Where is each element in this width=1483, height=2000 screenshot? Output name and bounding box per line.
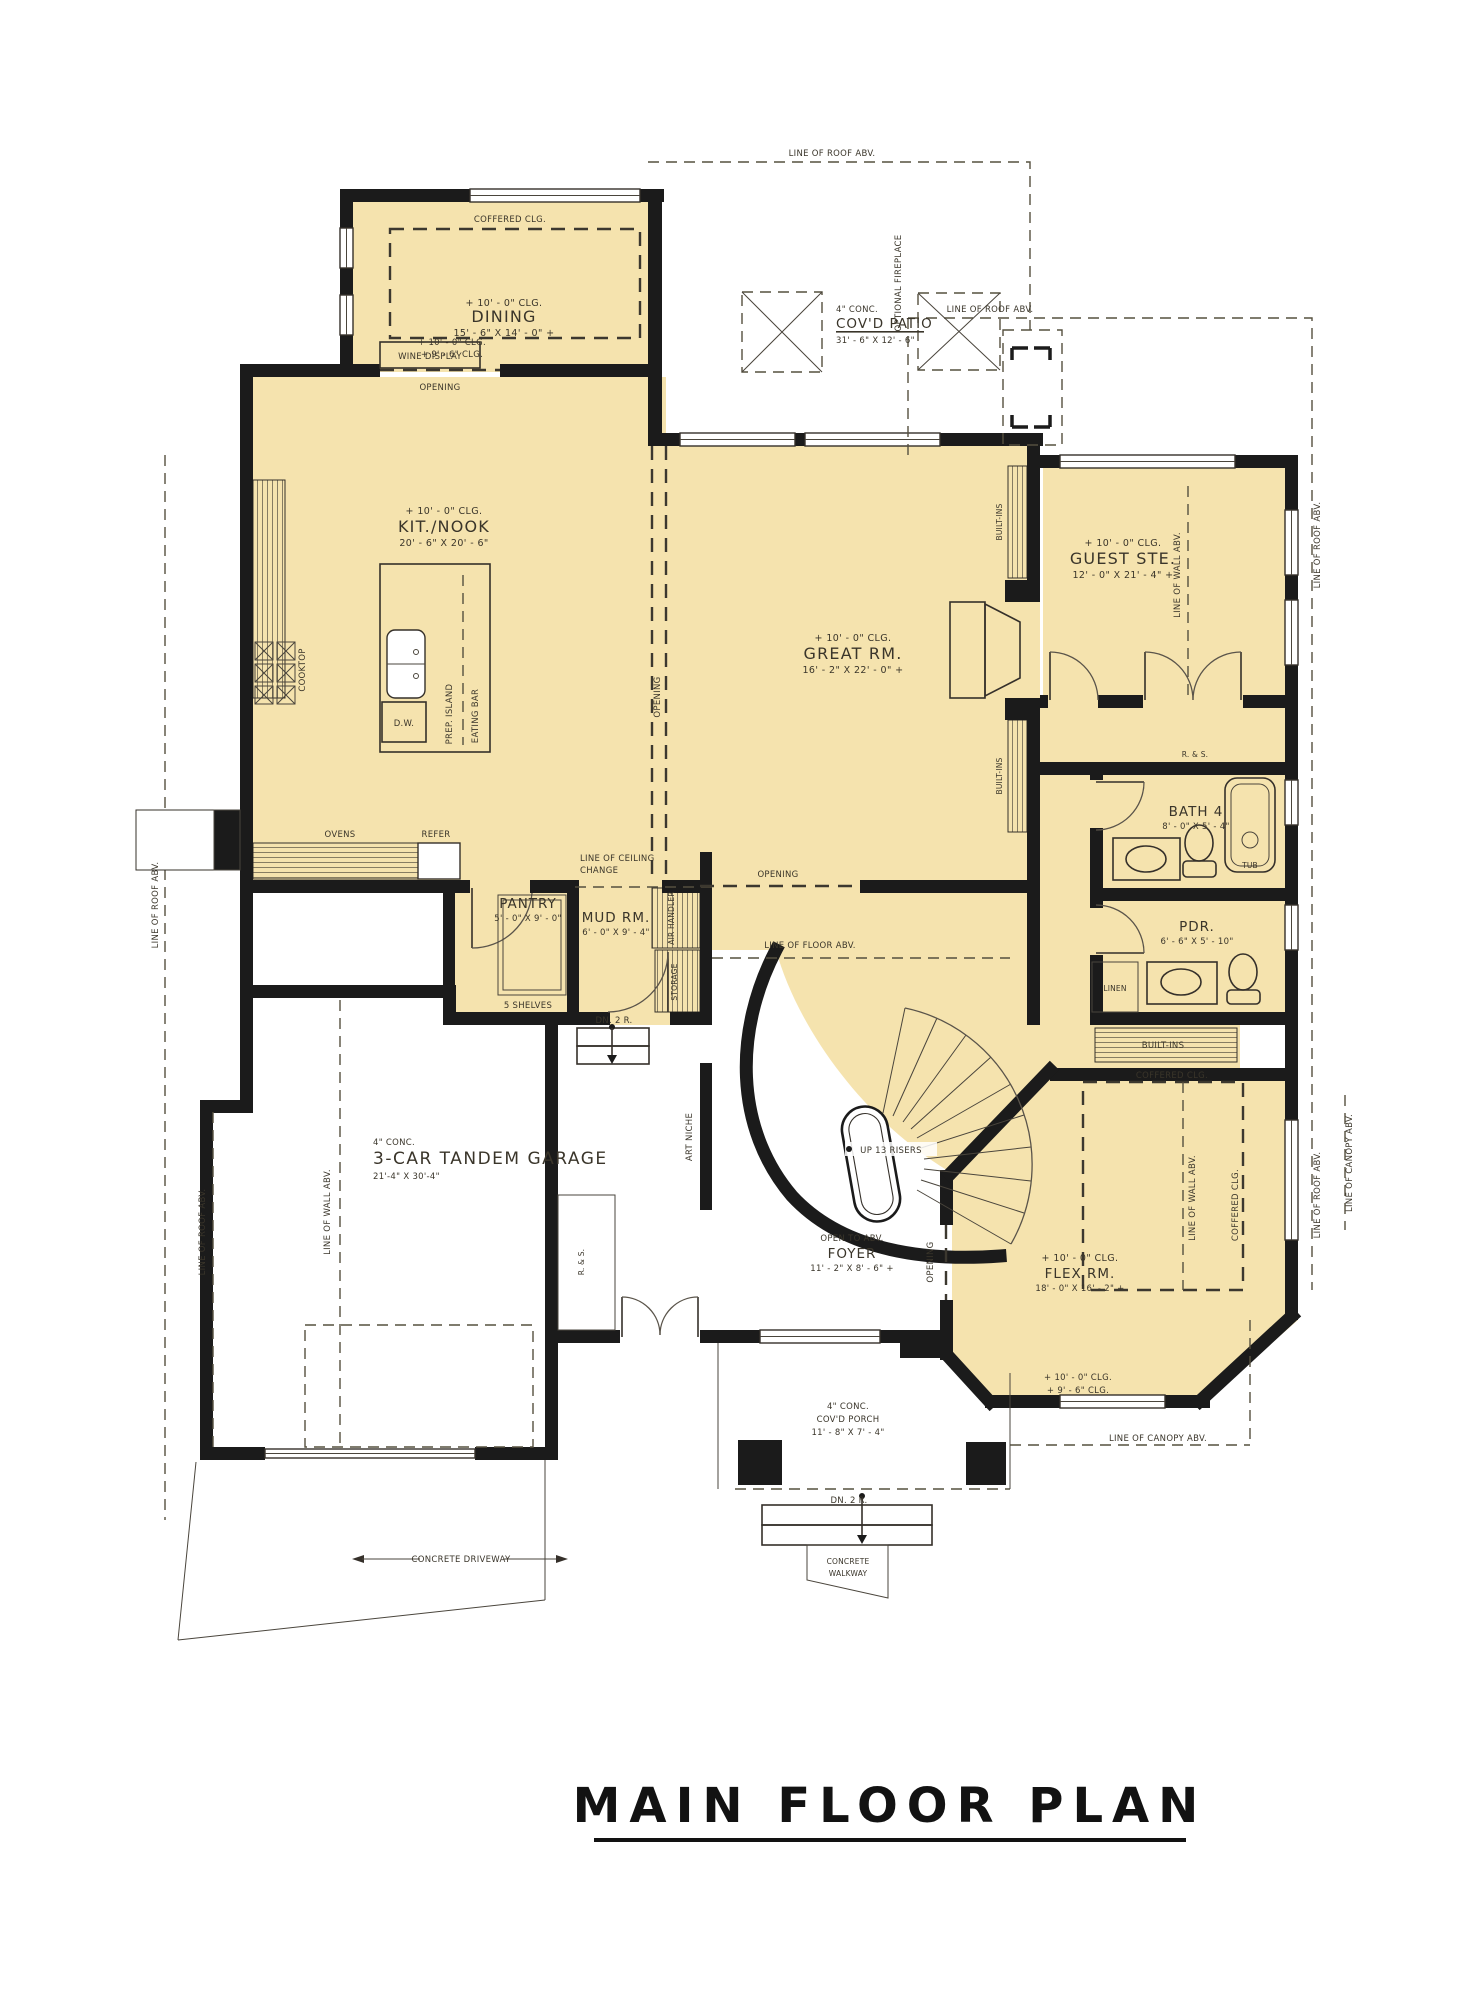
garage-name-label: 3-CAR TANDEM GARAGE [373,1149,608,1169]
refrigerator [418,843,460,879]
eating-bar-label: EATING BAR [471,689,481,743]
porch-conc-label: 4" CONC. [827,1402,869,1412]
floor-plan-drawing: + 10' - 0" CLG. DINING 15' - 6" X 14' - … [0,0,1483,2000]
window [805,433,940,446]
patio-name-label: COV'D PATIO [836,316,933,332]
walkway-label-2: WALKWAY [829,1569,868,1578]
guest-ceiling-label: + 10' - 0" CLG. [1085,538,1162,549]
guest-suite-floor [1043,468,1285,708]
wine-display-label: WINE DISPLAY [398,352,462,362]
guest-dims-label: 12' - 0" X 21' - 4" + [1072,570,1173,581]
window [340,295,353,335]
kitchen-dims-label: 20' - 6" X 20' - 6" [399,538,488,549]
flex-ceiling-label: + 10' - 0" CLG. [1042,1253,1119,1264]
cooktop-counter [253,480,285,698]
plan-title: MAIN FLOOR PLAN [573,1778,1208,1834]
bath4-name-label: BATH 4 [1169,804,1224,820]
great-dims-label: 16' - 2" X 22' - 0" + [802,665,903,676]
builtins-upper-label: BUILT-INS [995,503,1004,540]
pantry-dims-label: 5' - 0" X 9' - 0" [494,914,561,924]
left-roof-abv-label: LINE OF ROOF ABV. [151,862,161,949]
garage-bumpout [136,810,240,870]
up-risers-label: UP 13 RISERS [860,1146,922,1156]
kitchen-ceiling-label: + 10' - 0" CLG. [406,506,483,517]
front-double-door [622,1297,698,1337]
foyer-closet [558,1195,615,1330]
great-ceiling-label: + 10' - 0" CLG. [815,633,892,644]
bath4-dims-label: 8' - 0" X 5' - 4" [1162,822,1229,832]
window [1285,1120,1298,1240]
garage-door [265,1449,475,1458]
dining-name-label: DINING [471,307,536,326]
mud-dn2r-label: DN. 2 R. [595,1016,632,1026]
ovens-counter [253,843,418,879]
cooktop-label: COOKTOP [298,648,308,691]
right-roof-abv-label-2: LINE OF ROOF ABV. [1313,1152,1323,1239]
builtins-lower-label: BUILT-INS [995,757,1004,794]
patio-roof-label: LINE OF ROOF ABV. [789,149,876,159]
porch-name-label: COV'D PORCH [817,1415,880,1425]
optional-fireplace-niche [1003,330,1062,445]
window [340,228,353,268]
powder-name-label: PDR. [1179,919,1215,935]
driveway-label: CONCRETE DRIVEWAY [412,1555,511,1565]
walkway-label-1: CONCRETE [827,1557,870,1566]
dining-coffered-label: COFFERED CLG. [474,215,546,225]
window [1285,905,1298,950]
kitchen-floor [253,377,652,880]
floor-plan-sheet: + 10' - 0" CLG. DINING 15' - 6" X 14' - … [0,0,1483,2000]
patio-skylight-1 [742,292,822,372]
window [1285,780,1298,825]
window [1060,1395,1165,1408]
garage-dims-label: 21'-4" X 30'-4" [373,1172,440,1182]
porch-dims-label: 11' - 8" X 7' - 4" [811,1428,884,1438]
title-underline [594,1838,1186,1842]
pantry-shelves-label: 5 SHELVES [504,1001,552,1011]
window [1285,600,1298,665]
tub-label: TUB [1241,861,1258,870]
dining-opening-label: OPENING [419,383,460,393]
flex-clg96-label: + 9' - 6" CLG. [1047,1386,1109,1396]
foyer-open-label: OPEN TO ABV. [820,1234,883,1244]
mud-name-label: MUD RM. [582,910,651,926]
powder-dims-label: 6' - 6" X 5' - 10" [1160,937,1233,947]
flex-coffered-label: COFFERED CLG. [1136,1071,1208,1081]
bottom-canopy-abv-label: LINE OF CANOPY ABV. [1109,1434,1207,1444]
window [760,1330,880,1343]
window [1060,455,1235,468]
guest-closet-rs-label: R. & S. [1182,750,1209,759]
ceiling-change-label-1: LINE OF CEILING [580,854,654,864]
linen-label: LINEN [1103,984,1126,993]
driveway-outline [178,1460,545,1640]
flex-dims-label: 18' - 0" X 16' - 2" + [1035,1284,1124,1294]
kitchen-name-label: KIT./NOOK [398,517,490,536]
great-name-label: GREAT RM. [804,644,903,663]
flex-clg10-label: + 10' - 0" CLG. [1044,1373,1112,1383]
sheet-title: MAIN FLOOR PLAN [573,1778,1208,1842]
right-roof-abv-label: LINE OF ROOF ABV. [1313,502,1323,589]
refer-label: REFER [422,830,451,840]
patio-conc-label: 4" CONC. [836,305,878,315]
flex-wall-abv-label: LINE OF WALL ABV. [1188,1155,1198,1241]
window [470,189,640,202]
window [1285,510,1298,575]
prep-island-label: PREP. ISLAND [445,683,455,744]
floor-abv-label: LINE OF FLOOR ABV. [764,941,855,951]
flex-builtins-label: BUILT-INS [1142,1041,1185,1051]
flex-name-label: FLEX RM. [1045,1266,1116,1282]
builtins-upper [1008,466,1027,578]
air-handler-closet [652,888,700,948]
right-canopy-abv-label: LINE OF CANOPY ABV. [1345,1114,1355,1212]
patio-dims-label: 31' - 6" X 12' - 6" [836,336,915,346]
ceiling-change-label-2: CHANGE [580,866,618,876]
garage-wall-abv-label: LINE OF WALL ABV. [323,1169,333,1255]
ovens-label: OVENS [325,830,356,840]
foyer-name-label: FOYER [828,1246,877,1262]
left-roof-abv-label-2: LINE OF ROOF ABV. [198,1189,208,1276]
art-niche-label: ART NICHE [685,1113,695,1161]
kitchen-opening-label: OPENING [653,676,663,717]
window [680,433,795,446]
great-opening-label: OPENING [757,870,798,880]
guest-wall-abv-label: LINE OF WALL ABV. [1173,532,1183,618]
garage-bay-dash [305,1325,533,1447]
optional-fireplace-label: OPTIONAL FIREPLACE [894,235,904,332]
garage-conc-label: 4" CONC. [373,1138,415,1148]
mud-dims-label: 6' - 0" X 9' - 4" [582,928,649,938]
dining-clg10-label: + 10' - 0" CLG. [418,338,486,348]
foyer-closet-rs-label: R. & S. [577,1249,586,1276]
storage-label: STORAGE [670,963,679,1000]
topright-roof-abv-label: LINE OF ROOF ABV. [947,305,1034,315]
guest-name-label: GUEST STE. [1070,549,1176,568]
mud-steps [577,1024,649,1064]
flex-opening-label: OPENING [926,1241,936,1282]
foyer-dims-label: 11' - 2" X 8' - 6" + [810,1264,894,1274]
air-handler-label: AIR HANDLER [667,891,676,944]
pantry-name-label: PANTRY [499,896,557,912]
dishwasher-label: D.W. [394,719,415,729]
porch-dn2r-label: DN. 2 R. [830,1496,867,1506]
builtins-lower [1008,720,1027,832]
flex-coffered-label-2: COFFERED CLG. [1231,1169,1241,1241]
